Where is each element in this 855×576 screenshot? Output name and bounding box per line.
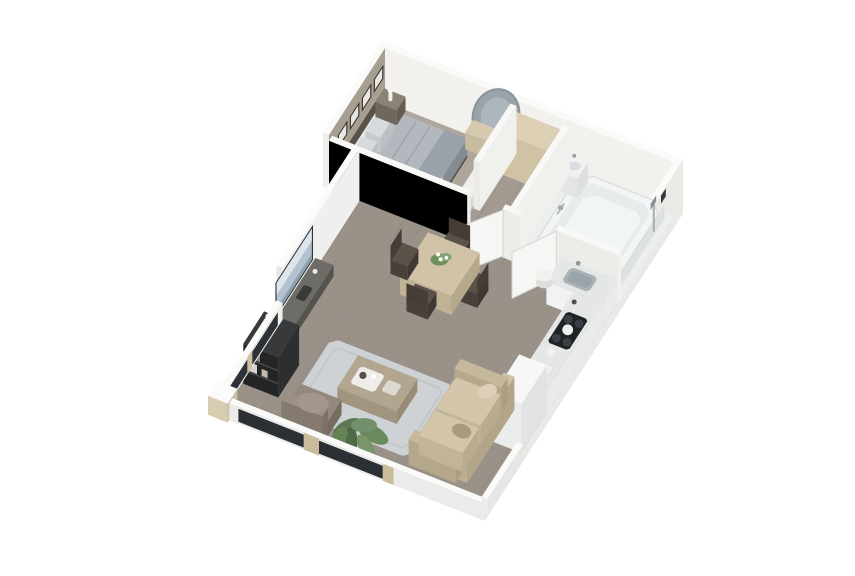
wall-bathroom-south-face-e [618, 250, 621, 303]
floor-plan-canvas [0, 0, 855, 576]
wall-bedroom-east-face-s [474, 161, 480, 211]
east-low-wall-face-s [482, 497, 488, 516]
hall-stool [536, 269, 553, 288]
floor-plan-3d-render [0, 0, 855, 576]
